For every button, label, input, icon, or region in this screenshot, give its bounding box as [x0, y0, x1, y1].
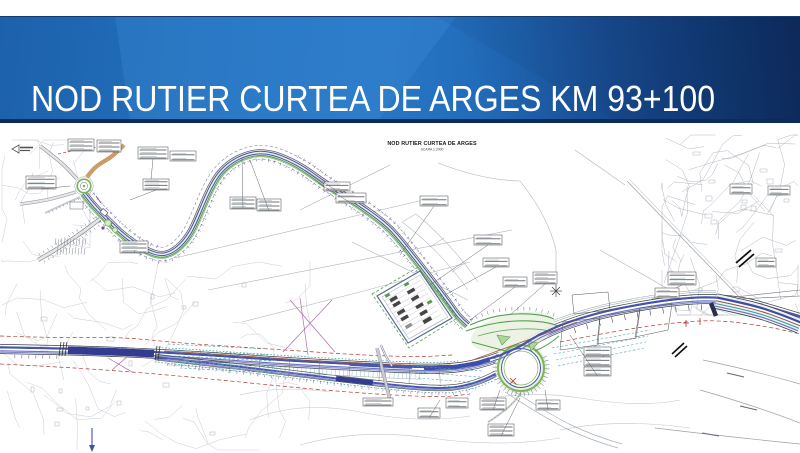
- svg-text:SCARA 1:2000: SCARA 1:2000: [421, 148, 444, 152]
- svg-text:NOD RUTIER CURTEA DE ARGES: NOD RUTIER CURTEA DE ARGES: [387, 141, 477, 147]
